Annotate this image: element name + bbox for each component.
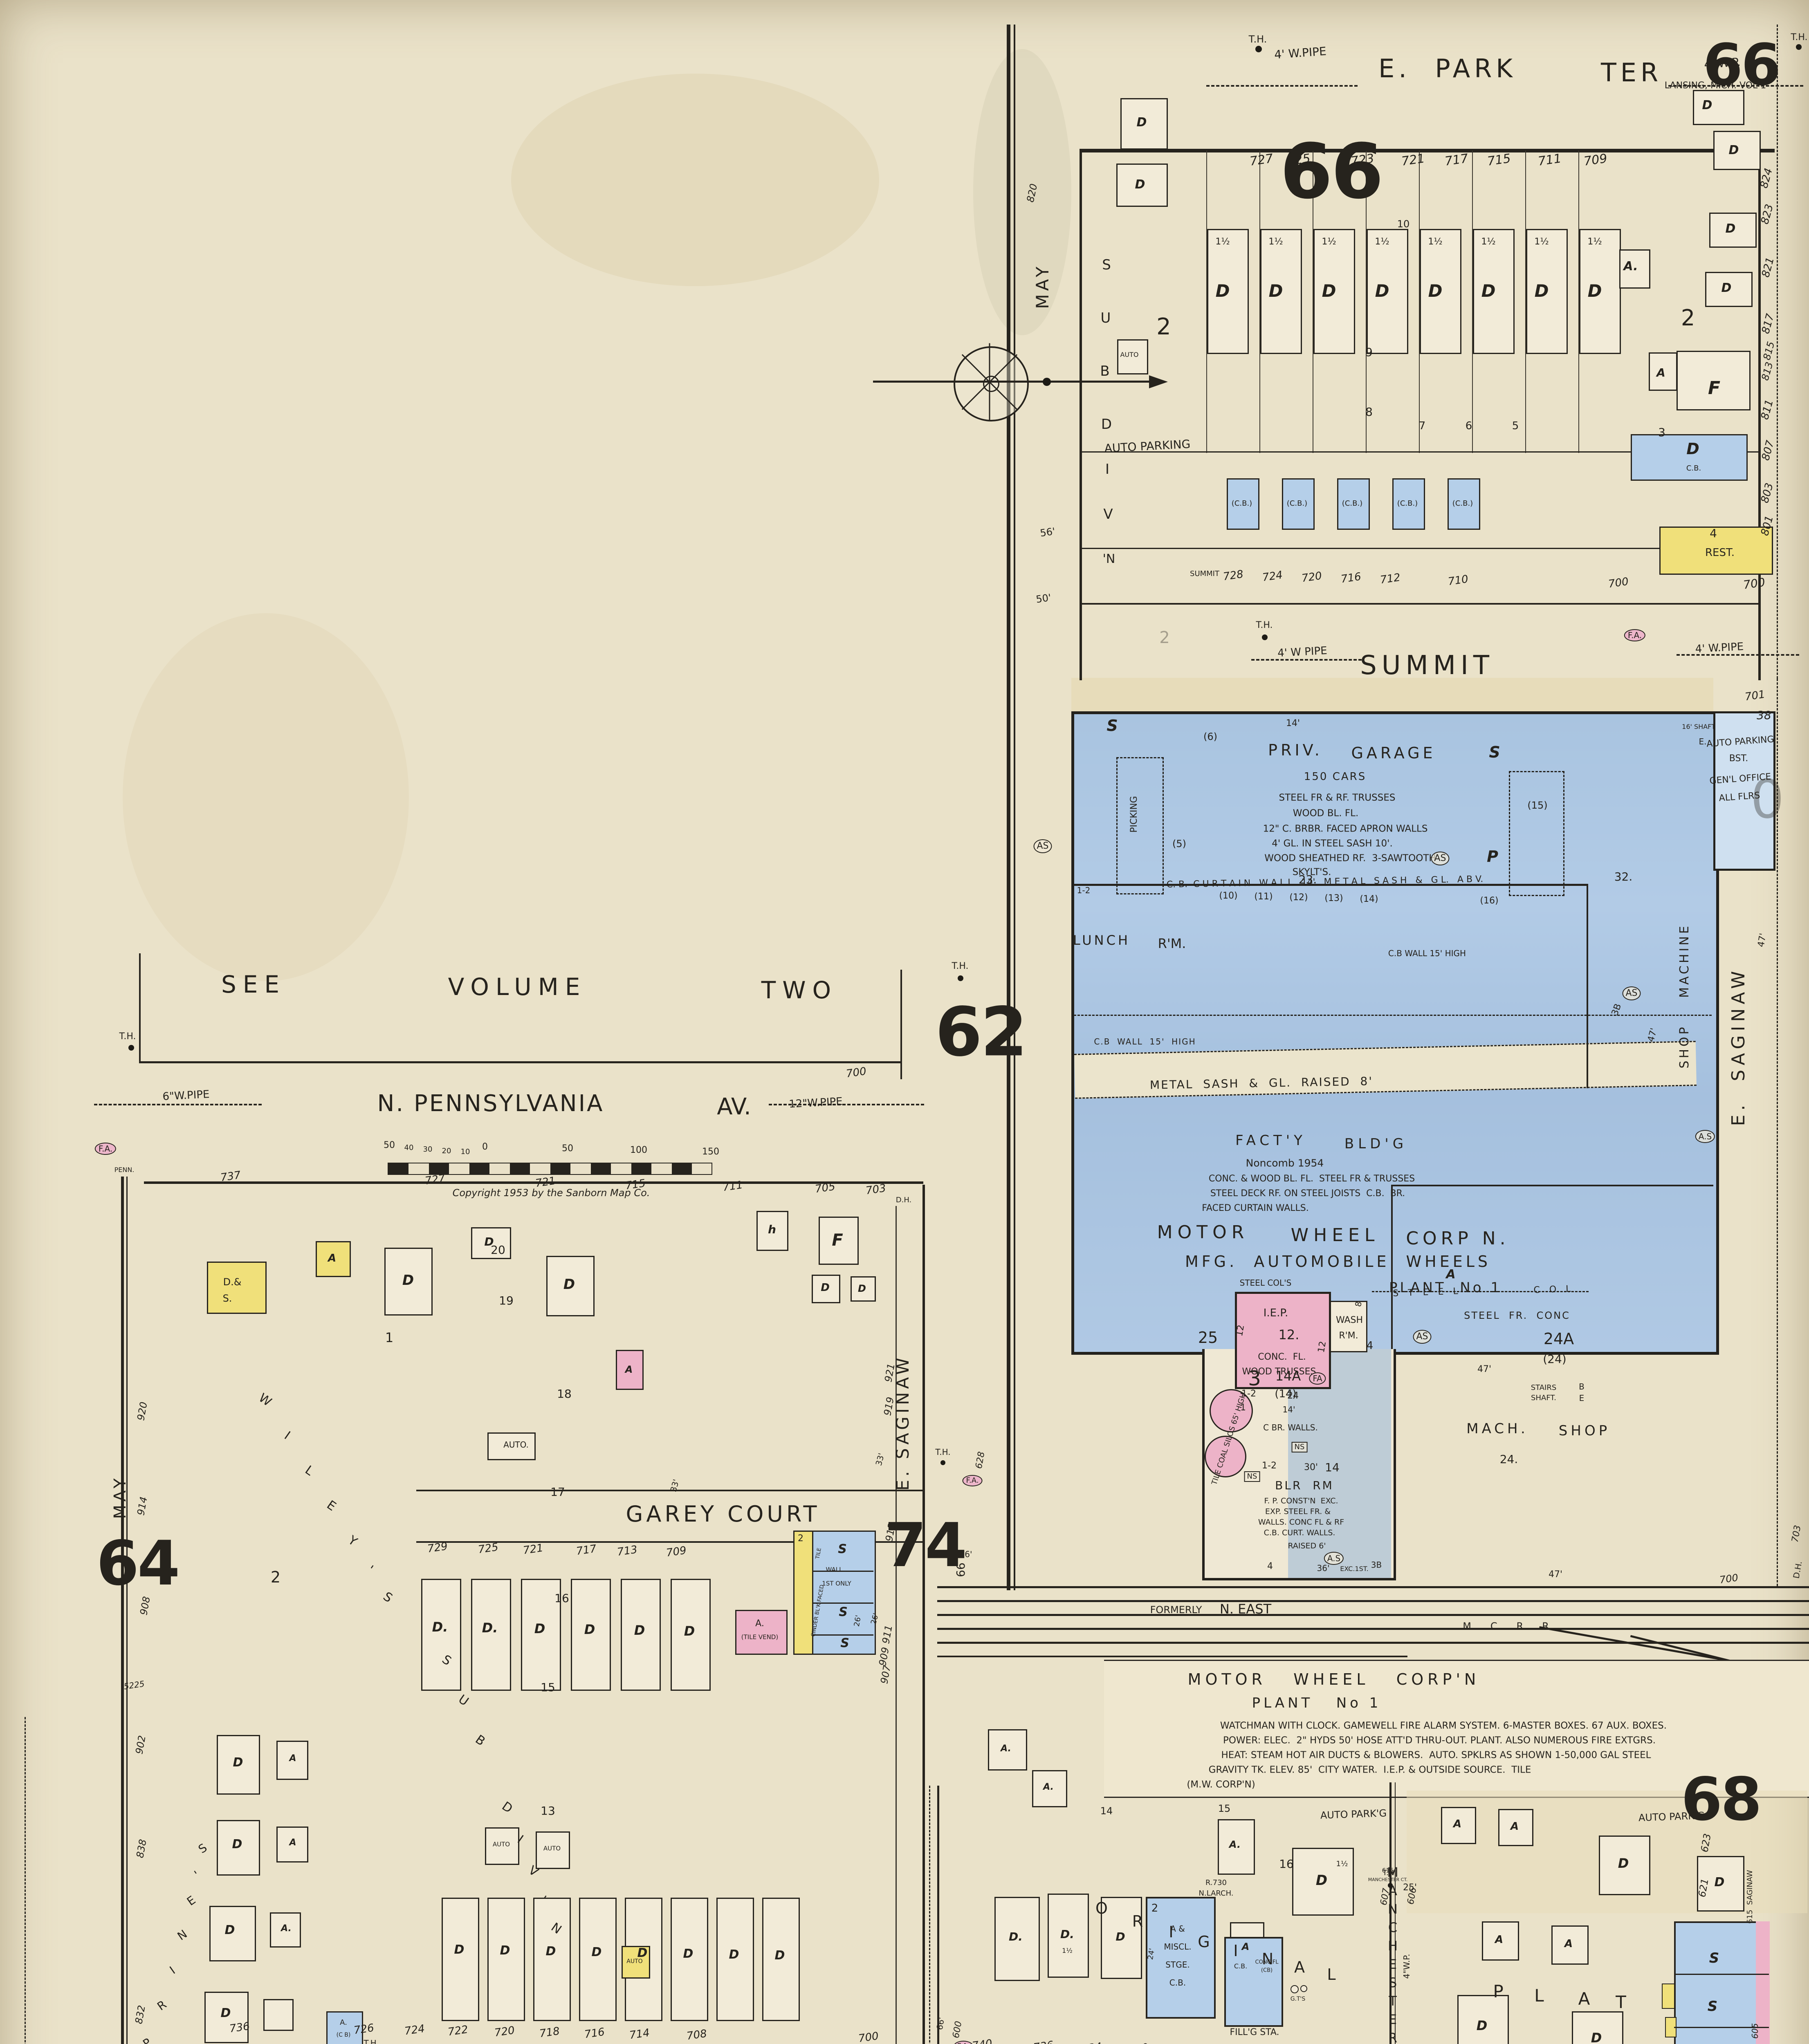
map-label: L: [303, 1464, 316, 1478]
map-label: A: [1578, 1990, 1590, 2008]
map-label: (14): [1360, 895, 1378, 904]
street-formerly-n-east: N. EAST: [1220, 1602, 1271, 1616]
map-label: R.730: [1205, 1879, 1227, 1887]
map-label: 717: [576, 1544, 597, 1557]
map-label: H: [1388, 1939, 1398, 1952]
map-label: D: [1721, 282, 1732, 294]
map-label: T: [1389, 1995, 1397, 2008]
street-garey-court: GAREY COURT: [626, 1503, 820, 1525]
map-label: 623: [1699, 1833, 1712, 1853]
th-marker: T.H.: [1249, 34, 1267, 44]
map-label: 8: [1365, 406, 1373, 418]
map-label: D: [1428, 282, 1443, 300]
saginaw-curb-dashed: [1777, 25, 1778, 679]
map-label: 902: [134, 1735, 147, 1755]
map-label: MISCL.: [1164, 1943, 1191, 1951]
map-label: 5: [1512, 421, 1519, 431]
map-label: 708: [686, 2028, 708, 2042]
map-label: SHAFT.: [1531, 1394, 1556, 1402]
map-label: V: [526, 1864, 540, 1879]
map-label: B: [473, 1733, 487, 1748]
park-ter-dwelling: [442, 1898, 479, 2021]
map-label: 911: [881, 1624, 894, 1644]
map-label: E: [1579, 1394, 1585, 1402]
map-label: AUTO: [626, 1959, 642, 1964]
map-label: 47': [1549, 1570, 1562, 1579]
map-label: S: [197, 1842, 209, 1855]
map-label: Noncomb 1954: [1246, 1158, 1324, 1168]
plant-note-line-1: WATCHMAN WITH CLOCK. GAMEWELL FIRE ALARM…: [1220, 1721, 1667, 1731]
street-e-saginaw-left: E. SAGINAW: [894, 1355, 911, 1491]
map-label: W: [256, 1392, 274, 1409]
wash-room: [1330, 1301, 1367, 1352]
map-label: 737: [220, 1170, 242, 1183]
map-label: 2: [798, 1534, 804, 1543]
map-label: D: [1322, 282, 1336, 300]
map-label: STEEL COL'S: [1240, 1279, 1292, 1287]
map-label: D: [729, 1949, 739, 1961]
map-label: D: [584, 1623, 595, 1636]
map-label: A: [328, 1253, 336, 1264]
map-label: 700: [1719, 1573, 1739, 1585]
map-label: 723: [1350, 152, 1375, 168]
map-label: A.S: [1695, 1130, 1715, 1143]
map-label: 909: [878, 1646, 891, 1666]
compass-arrow: [873, 381, 1155, 383]
map-label: AUTO: [493, 1842, 510, 1848]
map-label: F.A.: [963, 1475, 983, 1486]
map-label: 725: [478, 1542, 499, 1555]
map-label: 66': [935, 2017, 945, 2031]
map-label: D.&: [223, 1277, 242, 1287]
map-label: 724: [404, 2024, 426, 2037]
map-label: 150: [702, 1148, 719, 1156]
map-label: 709: [666, 1545, 687, 1559]
map-label: (15): [1527, 800, 1547, 810]
plant-note-line-2: POWER: ELEC. 2" HYDS 50' HOSE ATT'D THRU…: [1223, 1736, 1656, 1746]
map-label: BLD'G: [1344, 1137, 1407, 1151]
map-label: AUTO PARK'G: [1320, 1808, 1387, 1820]
map-label: F: [832, 1232, 843, 1248]
map-label: 10: [1397, 219, 1410, 229]
map-label: 1½: [1534, 238, 1549, 247]
plant-note-line-3: HEAT: STEAM HOT AIR DUCTS & BLOWERS. AUT…: [1221, 1751, 1651, 1760]
map-label: 717: [1444, 152, 1469, 168]
map-label: D: [221, 2007, 231, 2019]
sanborn-map-sheet: 35 T.H.4' W.PIPEE. PARKTER4' W.P.T.H.LAN…: [0, 0, 1809, 2044]
map-label: D: [225, 1924, 235, 1936]
map-label: D.H.: [896, 1197, 912, 1204]
map-label: 709: [1583, 152, 1608, 168]
map-label: (11): [1254, 892, 1273, 901]
map-label: FACED CURTAIN WALLS.: [1202, 1204, 1308, 1213]
map-label: 605: [1751, 2023, 1759, 2039]
map-label: 7: [1419, 421, 1426, 431]
map-label: EXP. STEEL FR. &: [1265, 1508, 1331, 1516]
water-pipe-line: [1677, 654, 1799, 656]
map-label: (C B): [337, 2032, 351, 2038]
map-label: P: [1493, 1983, 1503, 2000]
map-label: P: [141, 2037, 153, 2044]
map-label: D: [1702, 99, 1712, 112]
map-label: S: [1708, 1999, 1718, 2013]
map-label: 47': [1757, 932, 1768, 948]
map-label: 2: [1159, 630, 1169, 646]
map-label: 50: [562, 1144, 573, 1153]
map-label: D: [232, 1838, 242, 1851]
railroad-track: [937, 1614, 1809, 1616]
map-label: D: [1715, 1876, 1725, 1889]
map-label: EXC.1ST.: [1340, 1566, 1368, 1572]
map-label: GARAGE: [1351, 745, 1436, 761]
map-label: 713: [617, 1544, 638, 1558]
map-label: A: [1495, 1934, 1503, 1945]
map-label: C.B. CURT. WALLS.: [1264, 1529, 1335, 1537]
map-label: 1½: [1481, 238, 1495, 247]
map-label: 56': [1039, 527, 1056, 538]
map-label: 2: [1156, 316, 1171, 338]
park-ter-dwelling: [533, 1898, 571, 2021]
map-label: S: [1389, 1976, 1397, 1989]
map-label: 1½: [1375, 238, 1389, 247]
map-label: 26': [870, 1612, 880, 1625]
map-label: 700: [858, 2031, 880, 2044]
map-label: T: [1616, 1994, 1626, 2011]
map-label: C.B.: [1169, 1979, 1186, 1987]
map-label: 700: [1743, 576, 1766, 591]
map-label: F. P. CONST'N EXC.: [1264, 1497, 1338, 1505]
map-label: 14: [1325, 1462, 1340, 1473]
map-label: A.: [1001, 1744, 1011, 1753]
plant-note-line-4: GRAVITY TK. ELEV. 85' CITY WATER. I.E.P.…: [1209, 1766, 1531, 1775]
map-label: 17: [550, 1486, 565, 1498]
map-label: 6: [1466, 421, 1472, 431]
map-label: 621: [1697, 1878, 1710, 1898]
map-label: 25: [1198, 1330, 1218, 1345]
map-label: D: [1269, 282, 1283, 300]
map-label: 26': [853, 1615, 863, 1627]
map-label: 3B: [1371, 1561, 1382, 1569]
map-label: (16): [1480, 896, 1498, 905]
map-label: WASH: [1336, 1316, 1363, 1325]
map-label: V: [1103, 507, 1113, 521]
plant-note-line-5: (M.W. CORP'N): [1187, 1780, 1255, 1790]
map-label: 730: [1128, 2042, 1149, 2044]
map-label: 908: [139, 1596, 152, 1616]
map-label: FACT'Y: [1235, 1134, 1306, 1148]
map-label: 13: [541, 1805, 555, 1817]
map-label: D: [534, 1622, 545, 1635]
map-label: A: [289, 1754, 296, 1763]
map-label: FA: [1309, 1372, 1326, 1385]
map-label: 727: [1249, 152, 1274, 168]
map-label: 12.: [1279, 1328, 1300, 1341]
map-label: PENN.: [114, 1167, 135, 1173]
map-label: 813: [1760, 361, 1774, 381]
map-label: O: [1095, 1901, 1108, 1916]
map-label: 18: [557, 1388, 572, 1400]
map-label: D: [684, 1625, 695, 1638]
map-label: 14': [1286, 719, 1300, 728]
map-label: 820: [1025, 183, 1039, 203]
map-label: PRIV.: [1268, 742, 1323, 758]
map-label: CONC. FL.: [1258, 1353, 1306, 1362]
map-label: L: [1534, 1987, 1544, 2004]
map-label: MACHINE: [1679, 923, 1691, 998]
map-label: 6"W.PIPE: [162, 1089, 210, 1102]
map-label: WALLS. CONC FL & RF: [1258, 1519, 1344, 1526]
map-label: D: [1588, 282, 1602, 300]
copyright: Copyright 1953 by the Sanborn Map Co.: [453, 1188, 650, 1198]
map-label: (C.B.): [1397, 500, 1418, 507]
map-label: AS: [1622, 986, 1641, 1000]
map-label: 10: [461, 1148, 470, 1156]
map-label: C.B WALL 15' HIGH: [1094, 1038, 1196, 1046]
map-label: 914: [136, 1496, 149, 1516]
map-label: 815: [1762, 341, 1776, 361]
map-label: D: [1137, 117, 1147, 129]
street-may: MAY: [1034, 263, 1051, 309]
map-label: 9: [1365, 347, 1373, 358]
map-label: U: [456, 1693, 470, 1708]
map-label: 4: [1710, 528, 1717, 539]
map-label: E.: [1699, 737, 1707, 746]
map-label: D: [1115, 1931, 1125, 1943]
map-label: (TILE VEND): [741, 1634, 778, 1641]
map-label: 32.: [1614, 871, 1633, 883]
map-label: D: [402, 1273, 414, 1287]
map-label: D.: [1009, 1931, 1023, 1943]
map-label: MACH.: [1466, 1422, 1528, 1436]
map-label: C.B.: [1234, 1963, 1247, 1970]
map-label: 722: [447, 2024, 469, 2038]
map-label: L: [1327, 1967, 1335, 1982]
map-label: 1½: [1587, 238, 1602, 247]
map-label: STEEL FR & RF. TRUSSES: [1279, 793, 1396, 803]
map-label: N: [175, 1928, 189, 1943]
railroad-mcrr: M. C. R. R.: [1463, 1621, 1556, 1631]
map-label: D: [454, 1944, 465, 1956]
map-label: U: [1101, 311, 1111, 325]
map-label: D: [1375, 282, 1389, 300]
map-label: B: [1579, 1383, 1585, 1391]
map-label: 729: [427, 1541, 449, 1555]
th-dot: [1796, 44, 1802, 50]
map-label: C.B WALL 15' HIGH: [1388, 949, 1466, 957]
map-label: C O L: [1533, 1284, 1574, 1295]
map-label: T.H.: [1791, 33, 1808, 42]
map-label: S: [838, 1543, 847, 1555]
map-label: 736: [1033, 2040, 1055, 2044]
street-may-left: MAY: [112, 1475, 128, 1519]
map-label: 807: [1760, 439, 1776, 462]
map-label: D: [858, 1284, 866, 1293]
map-label: 24': [1147, 1948, 1156, 1961]
map-label: 36': [1317, 1564, 1330, 1572]
map-label: CONC. & WOOD BL. FL. STEEL FR & TRUSSES: [1209, 1174, 1415, 1183]
railroad-track: [937, 1586, 1809, 1588]
map-label: D.: [432, 1620, 448, 1634]
map-label: 50: [384, 1141, 395, 1150]
map-label: A: [1510, 1821, 1519, 1832]
map-label: 30': [1304, 1463, 1318, 1472]
map-label: 30: [423, 1146, 433, 1153]
map-label: 817: [1760, 313, 1776, 335]
water-pipe-line: [1206, 85, 1358, 87]
map-label: 711: [722, 1180, 744, 1193]
map-label: 40: [404, 1144, 414, 1152]
map-label: 1-2: [1262, 1461, 1277, 1470]
map-label: 1-2: [1077, 886, 1091, 894]
map-label: 803: [1760, 482, 1775, 504]
map-label: 715: [1487, 152, 1512, 168]
map-label: 50': [1035, 593, 1052, 605]
map-label: D: [1729, 144, 1739, 157]
map-label: 726: [353, 2023, 375, 2036]
map-label: STAIRS: [1531, 1384, 1557, 1392]
map-label: 14': [1283, 1405, 1295, 1414]
map-label: 150 CARS: [1304, 771, 1366, 782]
map-label: S T E E L: [1393, 1287, 1461, 1298]
map-label: E: [325, 1499, 338, 1513]
map-label: C: [1388, 1921, 1397, 1934]
may-street-line: [1014, 25, 1015, 1590]
map-label: (CB): [1261, 1968, 1273, 1973]
map-label: PLANT No 1: [1252, 1696, 1382, 1710]
map-label: 16' SHAFT: [1682, 724, 1715, 730]
map-label: F.A.: [954, 2041, 974, 2044]
railroad-track: [937, 1600, 1809, 1602]
map-label: 16: [554, 1593, 569, 1604]
gas-tank: [1291, 1985, 1299, 1993]
map-label: D: [1101, 417, 1112, 431]
filling-station: FILL'G STA.: [1230, 2028, 1279, 2037]
map-label: 4"W.P.: [1403, 1954, 1411, 1979]
map-label: 4: [1367, 1340, 1374, 1351]
map-label: R: [1388, 2031, 1397, 2044]
map-label: 721: [1401, 152, 1426, 168]
map-label: 736: [229, 2021, 251, 2035]
map-label: 720: [1301, 571, 1323, 584]
map-label: D: [500, 1945, 510, 1957]
map-label: 716: [584, 2027, 606, 2040]
section-66-corner: 66: [1703, 37, 1780, 94]
map-label: 38: [1757, 710, 1771, 721]
may-street-line-left: [121, 1177, 124, 2044]
map-label: I: [1105, 462, 1109, 476]
map-label: I: [1169, 1924, 1173, 1940]
map-label: 728: [1223, 569, 1244, 583]
map-label: 615 SAGINAW: [1746, 1870, 1754, 1923]
tile-vendor: [735, 1610, 788, 1655]
th-dot: [128, 1045, 134, 1051]
map-label: C.B.: [1686, 465, 1701, 472]
map-label: (C.B.): [1232, 500, 1252, 507]
map-label: T.H.: [1256, 621, 1273, 630]
map-label: 711: [1537, 152, 1562, 168]
map-label: WHEEL: [1291, 1226, 1380, 1244]
map-label: C BR. WALLS.: [1263, 1423, 1318, 1432]
map-label: 15: [1218, 1804, 1231, 1813]
map-label: WOOD SHEATHED RF. 3-SAWTOOTH: [1264, 854, 1436, 863]
map-label: 921: [883, 1363, 896, 1383]
map-label: A: [1242, 1942, 1250, 1952]
map-label: 913: [884, 1522, 897, 1542]
map-label: 19: [499, 1295, 514, 1307]
street-summit: SUMMIT: [1360, 652, 1494, 679]
map-label: A: [625, 1365, 633, 1374]
map-label: h: [768, 1224, 776, 1235]
map-label: STEEL FR. CONC: [1464, 1311, 1570, 1320]
map-label: S: [1709, 1951, 1719, 1965]
map-label: R: [155, 1999, 168, 2013]
th-dot: [940, 1460, 945, 1465]
map-label: S: [840, 1637, 849, 1650]
map-label: 712: [1380, 572, 1401, 586]
map-label: D: [637, 1947, 648, 1959]
map-label: S: [1102, 258, 1111, 272]
map-label: 1: [385, 1331, 393, 1344]
map-label: R: [1132, 1914, 1143, 1929]
map-label: AUTO PARK'G: [1638, 1811, 1705, 1823]
map-label: (24): [1543, 1354, 1566, 1365]
saginaw-street-line-left: [922, 1185, 925, 2044]
map-label: D: [500, 1800, 514, 1815]
map-label: P: [1487, 849, 1498, 864]
map-label: TER: [1601, 60, 1662, 85]
map-label: TWO: [761, 978, 837, 1002]
map-label: 24A: [1544, 1331, 1574, 1347]
map-label: D: [821, 1282, 830, 1293]
dwelling-store: [207, 1262, 267, 1314]
map-label: 715: [625, 1178, 646, 1192]
map-label: 725: [1286, 152, 1311, 168]
map-label: D: [1316, 1874, 1327, 1887]
map-label: A.: [1229, 1840, 1241, 1849]
map-label: A: [1656, 367, 1665, 379]
map-label: WALL: [826, 1567, 843, 1573]
map-label: RAISED 6': [1288, 1542, 1326, 1550]
map-label: 727: [424, 1173, 446, 1187]
map-label: Y: [346, 1534, 359, 1548]
map-label: S: [1489, 744, 1500, 760]
map-label: SHOP: [1679, 1024, 1691, 1068]
map-label: 716: [1340, 572, 1362, 585]
map-label: R'M.: [1339, 1331, 1358, 1340]
map-label: E: [1389, 1958, 1397, 1971]
map-label: I: [1233, 1943, 1238, 1959]
map-label: SUMMIT: [1190, 570, 1219, 578]
map-label: (14): [1275, 1389, 1296, 1399]
map-label: 721: [523, 1543, 544, 1556]
map-label: 600: [952, 2020, 964, 2039]
map-label: 1ST ONLY: [822, 1581, 851, 1587]
map-label: F: [1708, 379, 1720, 397]
map-label: T.H.: [364, 2039, 379, 2044]
map-label: D: [563, 1277, 575, 1291]
map-label: 628: [975, 1451, 987, 1469]
map-label: D: [1726, 223, 1736, 235]
section-62: 62: [935, 999, 1026, 1066]
map-label: 724: [1262, 570, 1284, 583]
street-e-saginaw: E. SAGINAW: [1730, 967, 1748, 1126]
map-label: 'N: [1103, 553, 1115, 565]
map-label: 734: [1081, 2042, 1103, 2044]
map-label: M: [1387, 1866, 1398, 1879]
map-label: A.: [281, 1924, 292, 1933]
map-label: 2: [1681, 307, 1695, 329]
section-64: 64: [97, 1533, 179, 1594]
